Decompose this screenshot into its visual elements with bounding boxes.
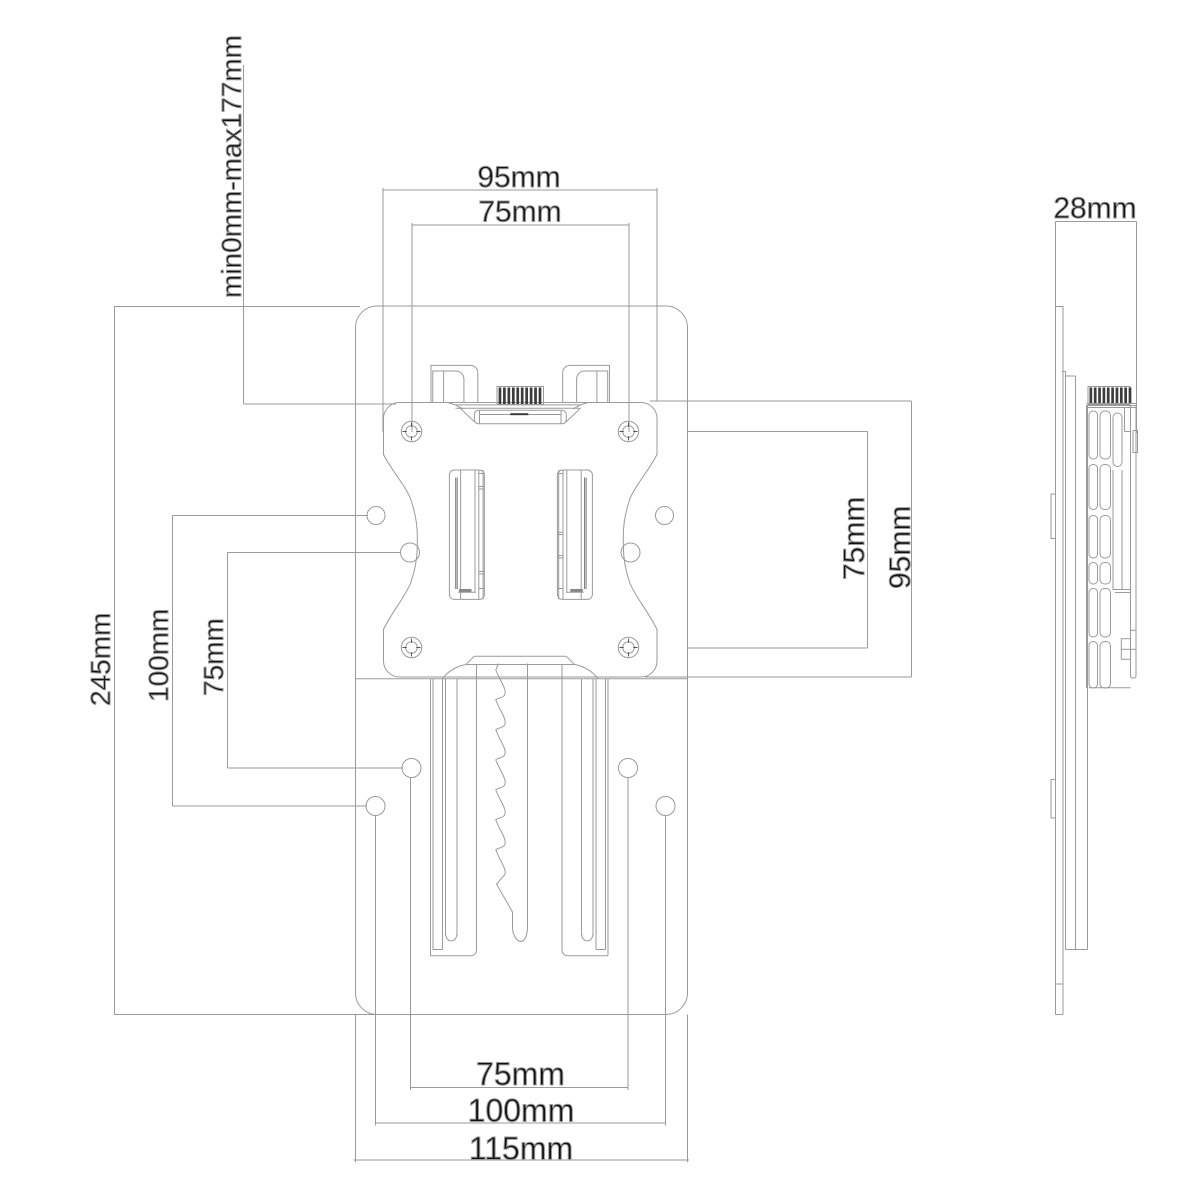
svg-text:100mm: 100mm [143,609,174,702]
svg-text:245mm: 245mm [85,613,116,706]
svg-text:75mm: 75mm [838,497,871,580]
svg-text:115mm: 115mm [469,1131,573,1167]
svg-text:75mm: 75mm [198,618,229,696]
svg-text:75mm: 75mm [478,196,561,229]
svg-text:min0mm-max177mm: min0mm-max177mm [216,35,247,298]
svg-text:95mm: 95mm [884,506,917,589]
svg-text:28mm: 28mm [1053,192,1136,225]
svg-text:75mm: 75mm [476,1056,565,1092]
svg-text:95mm: 95mm [477,161,560,194]
